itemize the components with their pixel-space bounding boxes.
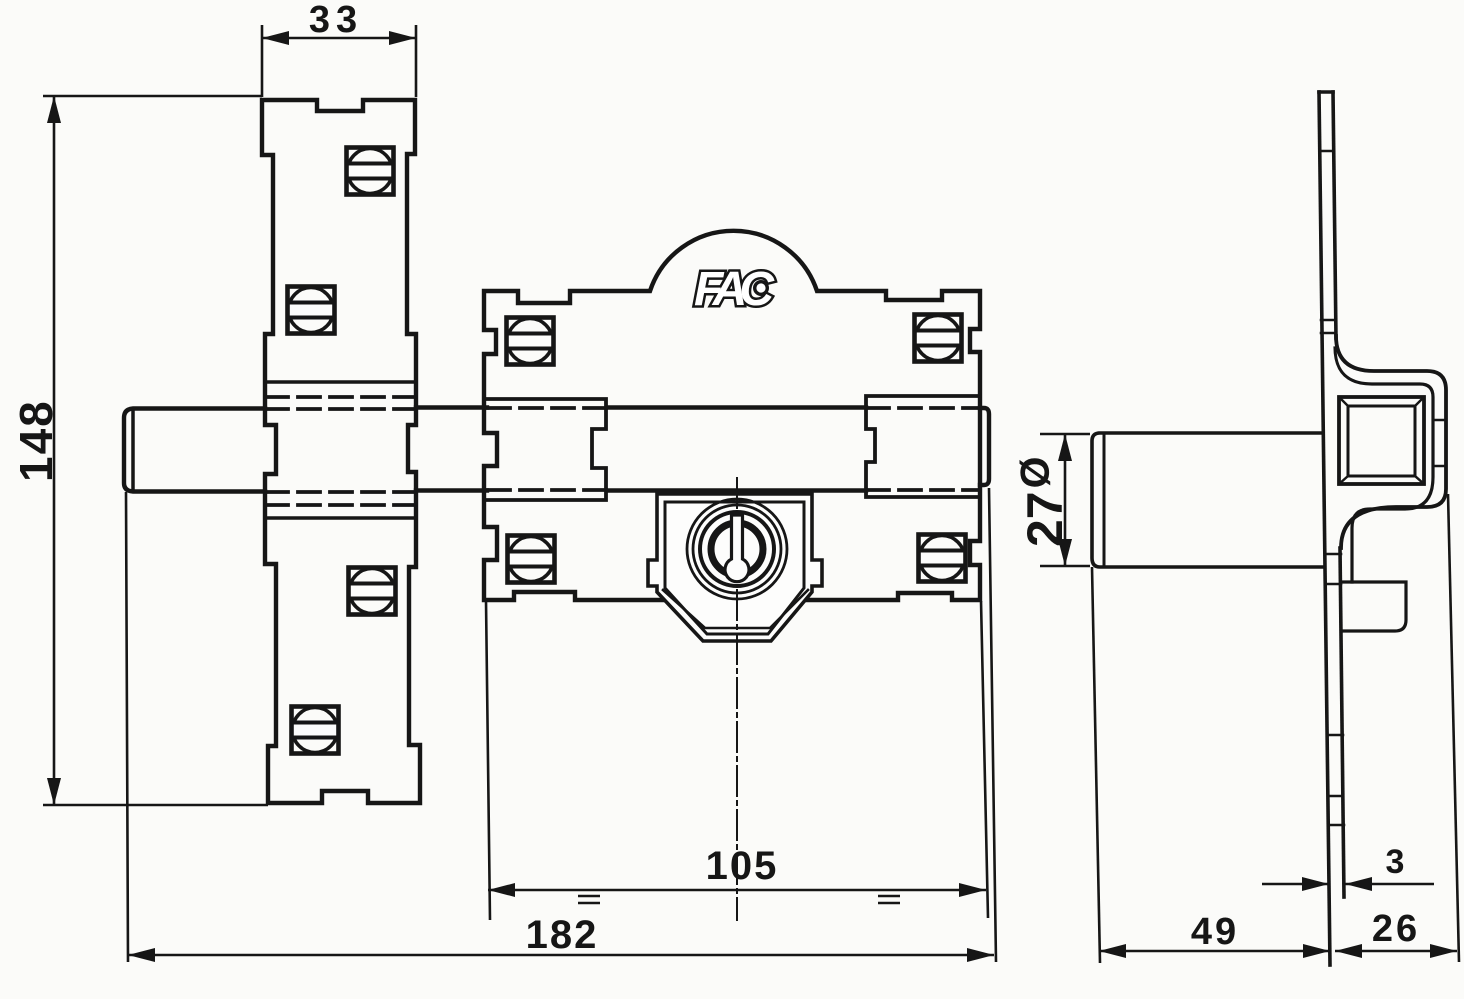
svg-text:148: 148: [10, 399, 62, 482]
svg-text:3: 3: [1386, 843, 1405, 881]
svg-text:105: 105: [706, 844, 779, 888]
svg-text:26: 26: [1372, 908, 1420, 950]
svg-text:182: 182: [526, 913, 599, 957]
svg-text:33: 33: [309, 0, 363, 41]
svg-text:49: 49: [1191, 911, 1239, 953]
